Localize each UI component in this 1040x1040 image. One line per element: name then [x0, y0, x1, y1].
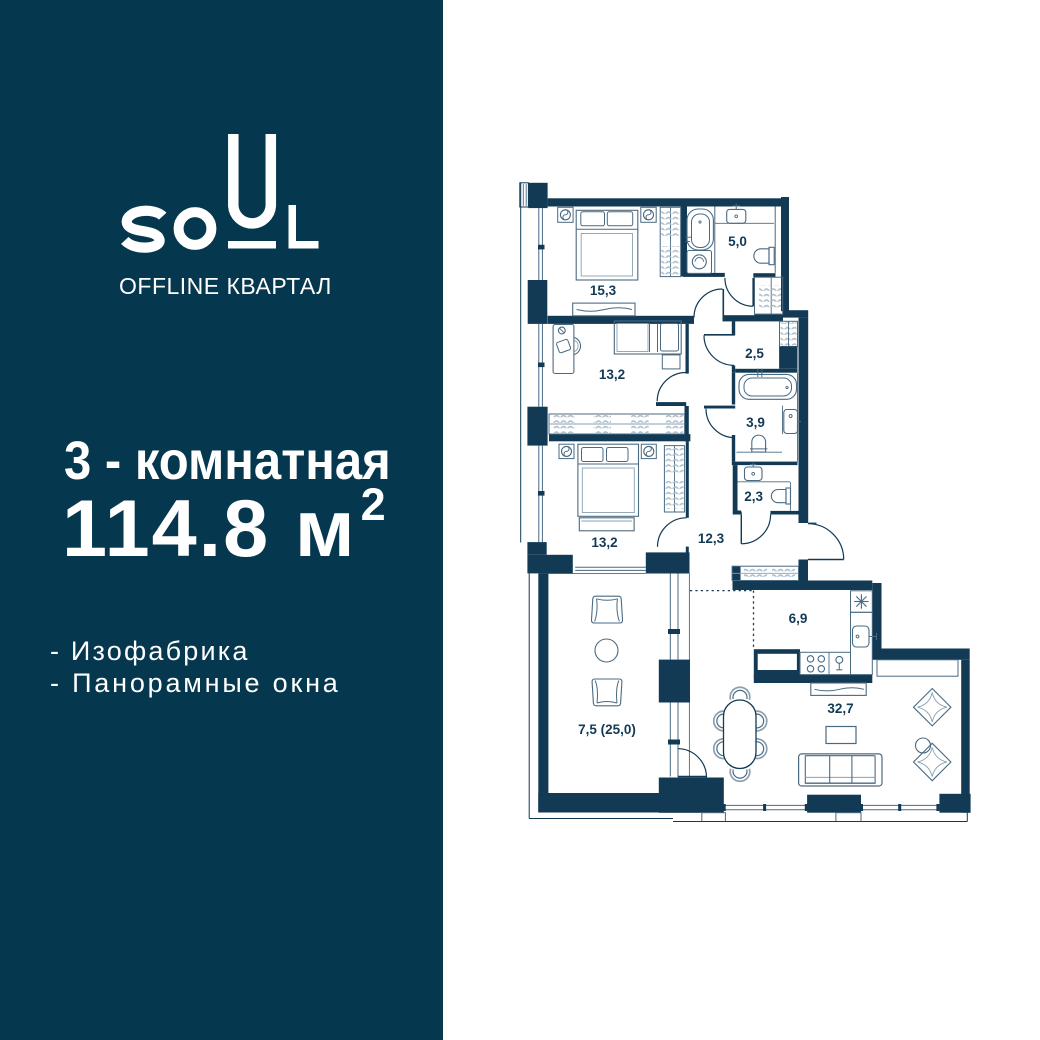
svg-text:13,2: 13,2: [591, 535, 617, 550]
svg-text:6,9: 6,9: [789, 611, 808, 626]
svg-text:7,5 (25,0): 7,5 (25,0): [578, 722, 636, 737]
svg-text:2,3: 2,3: [744, 489, 763, 504]
svg-text:12,3: 12,3: [698, 531, 725, 546]
svg-text:2,5: 2,5: [745, 346, 764, 361]
svg-text:13,2: 13,2: [599, 367, 625, 382]
svg-text:15,3: 15,3: [590, 283, 617, 298]
svg-text:3,9: 3,9: [746, 415, 765, 430]
svg-text:5,0: 5,0: [728, 234, 747, 249]
svg-text:32,7: 32,7: [827, 701, 853, 716]
